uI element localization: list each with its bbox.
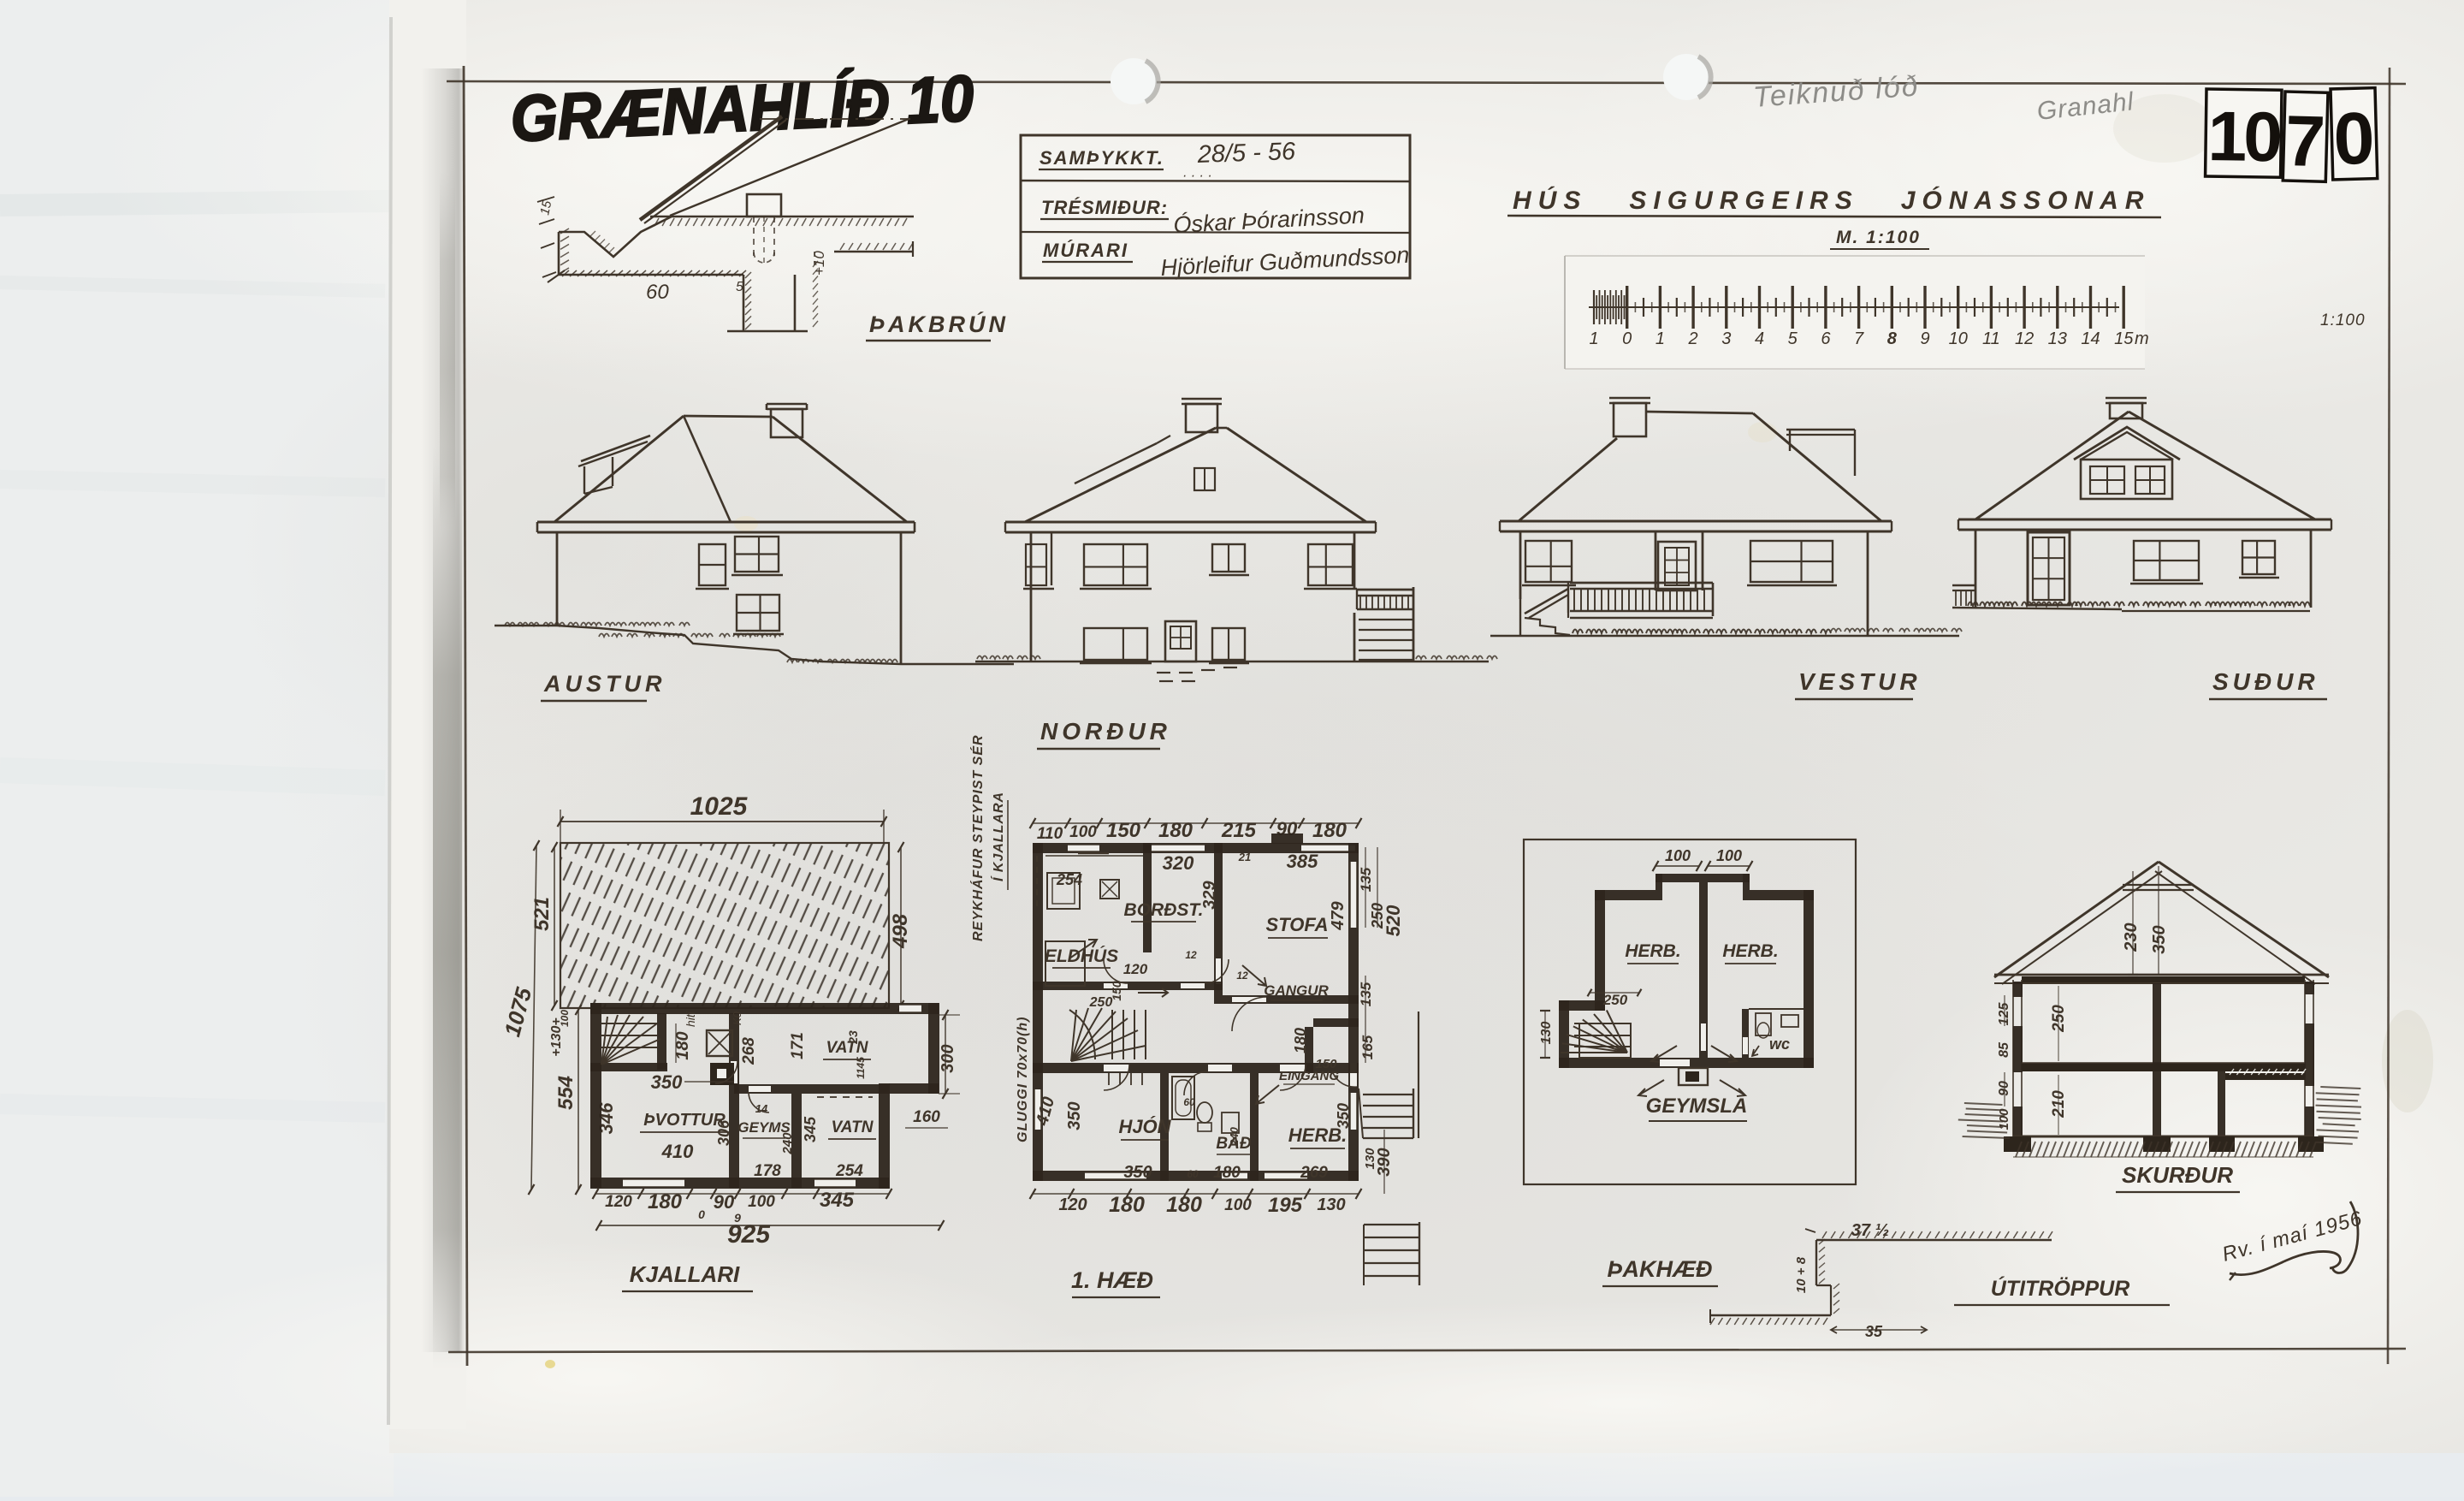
svg-text:0: 0 — [698, 1207, 705, 1221]
svg-text:254: 254 — [1056, 871, 1082, 888]
svg-text:Í KJALLARA: Í KJALLARA — [990, 792, 1006, 881]
svg-text:350: 350 — [651, 1071, 683, 1093]
svg-text:250: 250 — [1089, 995, 1113, 1010]
svg-text:10 + 8: 10 + 8 — [1794, 1256, 1809, 1293]
svg-text:2: 2 — [1688, 329, 1698, 348]
svg-text:254: 254 — [835, 1162, 863, 1180]
svg-text:ÞAKBRÚN: ÞAKBRÚN — [869, 311, 1009, 337]
svg-text:+10: +10 — [811, 251, 827, 276]
svg-text:100: 100 — [1997, 1108, 2011, 1130]
svg-text:7: 7 — [1854, 329, 1864, 348]
svg-text:498: 498 — [889, 913, 912, 949]
svg-text:100: 100 — [748, 1193, 775, 1211]
svg-text:HÚS SIGURGEIRS JÓNASSONAR: HÚS SIGURGEIRS JÓNASSONAR — [1513, 186, 2150, 215]
svg-text:60: 60 — [1183, 1096, 1195, 1108]
svg-text:SKURÐUR: SKURÐUR — [2122, 1162, 2233, 1188]
svg-text:21: 21 — [1238, 851, 1251, 863]
svg-text:9: 9 — [1920, 329, 1929, 348]
svg-text:350: 350 — [1123, 1163, 1152, 1182]
svg-text:195: 195 — [1268, 1194, 1303, 1217]
svg-text:M. 1:100: M. 1:100 — [1836, 228, 1921, 247]
svg-text:K0: K0 — [731, 1011, 743, 1025]
svg-text:HJÓN: HJÓN — [1118, 1116, 1171, 1137]
svg-text:240: 240 — [780, 1132, 795, 1155]
svg-text:1:100: 1:100 — [2320, 311, 2366, 329]
svg-text:SUÐUR: SUÐUR — [2212, 668, 2319, 695]
svg-text:4: 4 — [1755, 329, 1764, 348]
svg-text:300: 300 — [939, 1044, 957, 1072]
svg-text:ÞVOTTUR: ÞVOTTUR — [643, 1111, 726, 1130]
svg-text:125: 125 — [1997, 1002, 2011, 1026]
svg-text:171: 171 — [789, 1032, 807, 1059]
svg-text:90: 90 — [1997, 1081, 2011, 1096]
svg-text:6: 6 — [1821, 329, 1831, 348]
svg-text:GEYMSLA: GEYMSLA — [1646, 1095, 1748, 1118]
svg-text:180: 180 — [1312, 819, 1347, 842]
svg-text:ÚTITRÖPPUR: ÚTITRÖPPUR — [1991, 1276, 2130, 1301]
svg-text:AUSTUR: AUSTUR — [543, 671, 666, 697]
svg-text:120: 120 — [1058, 1195, 1087, 1214]
svg-text:STOFA: STOFA — [1266, 914, 1329, 935]
svg-text:5: 5 — [736, 280, 743, 294]
svg-text:410: 410 — [661, 1141, 694, 1162]
svg-text:180: 180 — [1213, 1164, 1241, 1182]
svg-text:100: 100 — [559, 1010, 571, 1027]
svg-text:180: 180 — [648, 1190, 683, 1213]
svg-text:521: 521 — [530, 897, 554, 931]
svg-text:8: 8 — [1887, 329, 1898, 348]
svg-text:1145: 1145 — [855, 1057, 867, 1079]
svg-text:37 ½: 37 ½ — [1851, 1221, 1889, 1240]
svg-text:5: 5 — [1788, 329, 1798, 348]
svg-text:23: 23 — [846, 1030, 860, 1045]
svg-text:15: 15 — [2114, 329, 2134, 348]
svg-text:100: 100 — [1665, 847, 1691, 864]
svg-text:MÚRARI: MÚRARI — [1043, 240, 1128, 261]
svg-text:554: 554 — [554, 1076, 577, 1110]
svg-text:90: 90 — [714, 1191, 735, 1213]
svg-text:13: 13 — [2048, 329, 2067, 348]
svg-text:180: 180 — [1158, 819, 1193, 842]
svg-text:hiti: hiti — [684, 1011, 697, 1027]
svg-text:240: 240 — [1228, 1126, 1241, 1146]
svg-text:350: 350 — [2150, 925, 2169, 953]
svg-text:100: 100 — [1069, 823, 1097, 841]
svg-text:HERB.: HERB. — [1625, 941, 1680, 961]
svg-text:10: 10 — [2207, 98, 2281, 176]
svg-text:230: 230 — [2122, 923, 2141, 952]
svg-text:150: 150 — [1315, 1057, 1337, 1071]
svg-text:520: 520 — [1383, 905, 1404, 936]
svg-text:215: 215 — [1221, 819, 1257, 842]
svg-text:180: 180 — [1166, 1193, 1202, 1217]
svg-text:1. HÆÐ: 1. HÆÐ — [1071, 1267, 1153, 1293]
svg-text:12: 12 — [1236, 970, 1248, 982]
svg-text:100: 100 — [1224, 1196, 1252, 1214]
svg-text:150: 150 — [1106, 819, 1141, 842]
svg-text:60: 60 — [646, 281, 669, 304]
svg-text:NORÐUR: NORÐUR — [1040, 718, 1171, 745]
svg-text:28/5 - 56: 28/5 - 56 — [1196, 138, 1296, 169]
svg-text:130: 130 — [1317, 1195, 1345, 1214]
svg-text:479: 479 — [1329, 900, 1347, 930]
svg-text:VESTUR: VESTUR — [1798, 668, 1922, 695]
svg-text:180: 180 — [1292, 1028, 1309, 1053]
svg-text:0: 0 — [2332, 98, 2375, 181]
svg-text:0: 0 — [1622, 329, 1632, 348]
svg-text:180: 180 — [1109, 1193, 1145, 1217]
svg-text:100: 100 — [1716, 847, 1742, 864]
svg-text:12: 12 — [2015, 329, 2034, 348]
svg-text:120: 120 — [1123, 961, 1148, 977]
svg-text:10: 10 — [1949, 329, 1968, 348]
svg-text:268: 268 — [740, 1037, 758, 1065]
svg-text:165: 165 — [1359, 1035, 1376, 1059]
svg-text:REYKHÁFUR STEYPIST SÉR: REYKHÁFUR STEYPIST SÉR — [969, 734, 986, 941]
svg-text:ELDHÚS: ELDHÚS — [1045, 946, 1118, 966]
svg-text:329: 329 — [1200, 880, 1219, 909]
svg-text:85: 85 — [1997, 1041, 2011, 1058]
svg-text:VATN: VATN — [832, 1118, 874, 1136]
svg-text:wc: wc — [1769, 1035, 1790, 1053]
svg-text:1: 1 — [1589, 329, 1598, 348]
svg-text:925: 925 — [727, 1220, 771, 1249]
svg-text:345: 345 — [802, 1116, 819, 1142]
svg-text:GANGUR: GANGUR — [1264, 982, 1329, 999]
svg-text:14: 14 — [2081, 329, 2100, 348]
svg-text:110: 110 — [1037, 825, 1063, 843]
svg-text:TRÉSMIÐUR:: TRÉSMIÐUR: — [1041, 197, 1168, 218]
svg-text:350: 350 — [1065, 1101, 1084, 1130]
svg-text:m: m — [2135, 329, 2149, 348]
svg-text:3: 3 — [1721, 329, 1731, 348]
svg-text:320: 320 — [1163, 852, 1194, 874]
svg-text:GLUGGI 70x70(h): GLUGGI 70x70(h) — [1016, 1017, 1030, 1142]
svg-text:1025: 1025 — [690, 792, 749, 821]
svg-text:178: 178 — [754, 1162, 781, 1180]
svg-text:350: 350 — [1335, 1103, 1352, 1129]
svg-text:KJALLARI: KJALLARI — [630, 1261, 740, 1287]
svg-text:1: 1 — [1655, 329, 1665, 348]
svg-text:SAMÞYKKT.: SAMÞYKKT. — [1039, 147, 1164, 169]
svg-text:345: 345 — [820, 1189, 855, 1212]
svg-text:160: 160 — [913, 1108, 940, 1126]
svg-text:HERB.: HERB. — [1722, 941, 1778, 961]
svg-text:120: 120 — [605, 1193, 632, 1211]
svg-text:12: 12 — [1185, 949, 1197, 961]
svg-text:250: 250 — [1602, 992, 1628, 1008]
svg-text:11: 11 — [1982, 329, 2000, 348]
svg-text:· · · ·: · · · · — [1182, 169, 1212, 183]
svg-text:60: 60 — [1187, 1168, 1199, 1180]
svg-text:306: 306 — [715, 1119, 732, 1146]
svg-text:269: 269 — [1300, 1164, 1328, 1182]
svg-text:35: 35 — [1865, 1323, 1883, 1340]
svg-text:7: 7 — [2284, 100, 2326, 181]
svg-text:130: 130 — [1539, 1022, 1554, 1045]
svg-text:385: 385 — [1287, 851, 1318, 872]
svg-text:BORÐST.: BORÐST. — [1124, 900, 1204, 920]
svg-text:ÞAKHÆÐ: ÞAKHÆÐ — [1607, 1256, 1712, 1282]
svg-text:14: 14 — [755, 1102, 768, 1115]
